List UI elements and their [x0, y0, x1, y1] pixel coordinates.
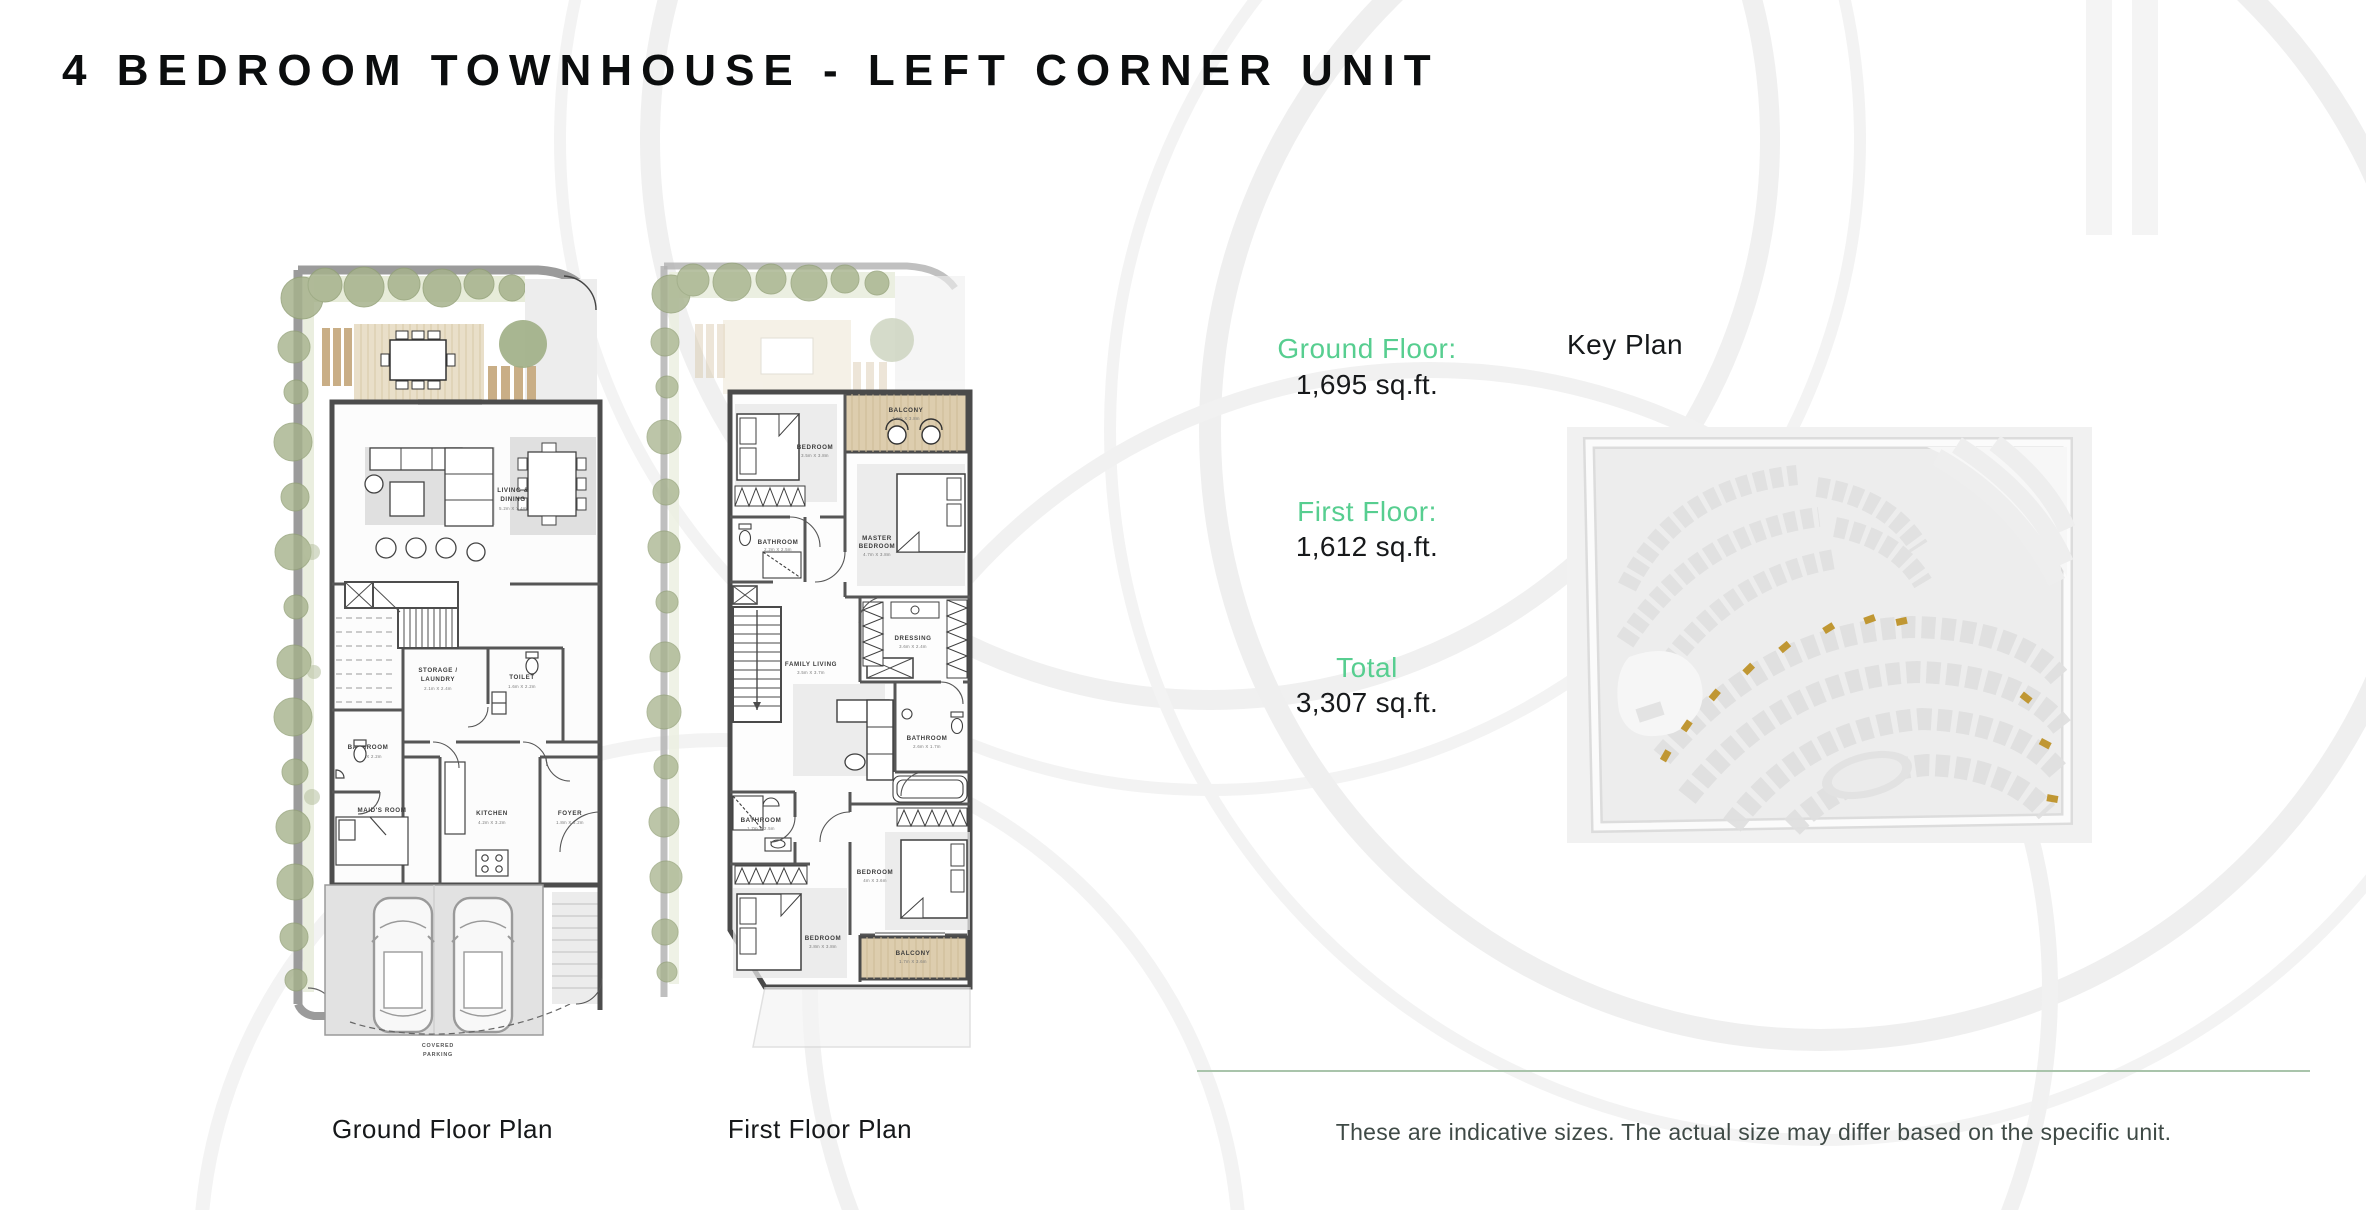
first-floor-label: First Floor:	[1247, 496, 1487, 528]
dining-furniture	[510, 437, 596, 535]
svg-text:1.7m X 2.5m: 1.7m X 2.5m	[747, 826, 775, 831]
tree-row-top	[652, 263, 889, 313]
tree-row-top	[281, 267, 525, 319]
first-floor-value: 1,612 sq.ft.	[1247, 531, 1487, 563]
svg-text:COVERED: COVERED	[422, 1043, 454, 1049]
separator-line	[1197, 1070, 2310, 1072]
first-floor-plan: BALCONY 1.9m X 3.8m	[645, 252, 995, 1067]
svg-text:BEDROOM: BEDROOM	[805, 935, 842, 942]
svg-text:3.5m X 3.7m: 3.5m X 3.7m	[797, 670, 825, 675]
svg-text:STORAGE /: STORAGE /	[418, 667, 457, 674]
bedroom-furniture	[733, 888, 847, 978]
covered-parking: COVERED PARKING	[325, 885, 570, 1058]
bedroom-furniture	[885, 832, 970, 930]
terrace-deck	[354, 324, 484, 412]
key-plan-map-svg	[1567, 427, 2092, 843]
entry-steps	[552, 885, 602, 1010]
svg-text:4m X 3.6m: 4m X 3.6m	[863, 878, 887, 883]
total-value: 3,307 sq.ft.	[1247, 687, 1487, 719]
ground-floor-value: 1,695 sq.ft.	[1247, 369, 1487, 401]
ground-floor-plan-svg: LIVING & DINING 5.2m X 7.4m STORAGE / LA…	[270, 252, 615, 1067]
first-floor-caption: First Floor Plan	[645, 1114, 995, 1145]
ground-floor-caption: Ground Floor Plan	[270, 1114, 615, 1145]
total-label: Total	[1247, 652, 1487, 684]
svg-text:BALCONY: BALCONY	[896, 950, 931, 957]
svg-text:4.7m X 3.8m: 4.7m X 3.8m	[863, 552, 891, 557]
svg-text:LAUNDRY: LAUNDRY	[421, 676, 455, 683]
disclaimer-text: These are indicative sizes. The actual s…	[1197, 1119, 2310, 1146]
wardrobe	[897, 808, 967, 826]
svg-text:3.8m X 3.8m: 3.8m X 3.8m	[809, 944, 837, 949]
svg-text:FOYER: FOYER	[558, 810, 582, 817]
svg-text:BALCONY: BALCONY	[889, 407, 924, 414]
tree-column-left	[274, 331, 313, 991]
balcony-top: BALCONY 1.9m X 3.8m	[845, 394, 967, 452]
svg-text:2.1m X 2.4m: 2.1m X 2.4m	[424, 686, 452, 691]
staircase	[733, 607, 781, 722]
first-floor-plan-svg: BALCONY 1.9m X 3.8m	[645, 252, 995, 1067]
svg-text:2.2m X 2.5m: 2.2m X 2.5m	[764, 547, 792, 552]
family-living-furniture	[793, 684, 893, 780]
key-plan-map	[1567, 427, 2092, 843]
svg-text:FAMILY LIVING: FAMILY LIVING	[785, 661, 837, 668]
svg-text:LIVING &: LIVING &	[497, 487, 529, 494]
svg-text:TOILET: TOILET	[509, 674, 535, 681]
balcony-bottom: BALCONY 1.7m X 3.6m	[860, 937, 967, 979]
brochure-page: { "page": { "title": "4 BEDROOM TOWNHOUS…	[0, 0, 2366, 1210]
svg-text:1.6m X 2.2m: 1.6m X 2.2m	[508, 684, 536, 689]
ground-floor-label: Ground Floor:	[1247, 333, 1487, 365]
svg-text:1.7m X 3.6m: 1.7m X 3.6m	[899, 959, 927, 964]
page-title: 4 BEDROOM TOWNHOUSE - LEFT CORNER UNIT	[62, 46, 1440, 96]
svg-text:5.2m X 7.4m: 5.2m X 7.4m	[499, 506, 527, 511]
key-plan-title: Key Plan	[1567, 329, 1683, 361]
ground-floor-plan: LIVING & DINING 5.2m X 7.4m STORAGE / LA…	[270, 252, 615, 1067]
svg-text:PARKING: PARKING	[423, 1052, 453, 1058]
svg-text:BEDROOM: BEDROOM	[857, 869, 894, 876]
master-bedroom-furniture	[857, 464, 965, 586]
svg-text:BATHROOM: BATHROOM	[741, 817, 782, 824]
svg-text:4.2m X 3.2m: 4.2m X 3.2m	[478, 820, 506, 825]
svg-text:BATHROOM: BATHROOM	[758, 539, 799, 546]
wardrobe	[735, 866, 807, 884]
tree-column-left	[647, 328, 682, 982]
svg-text:2.6m X 1.7m: 2.6m X 1.7m	[913, 744, 941, 749]
car	[372, 898, 434, 1032]
svg-text:BEDROOM: BEDROOM	[859, 543, 896, 550]
wardrobe	[735, 486, 805, 506]
svg-text:KITCHEN: KITCHEN	[476, 810, 508, 817]
car	[452, 898, 514, 1032]
svg-text:MASTER: MASTER	[862, 535, 892, 542]
svg-text:BATHROOM: BATHROOM	[907, 735, 948, 742]
svg-text:1.9m X 3.8m: 1.9m X 3.8m	[892, 416, 920, 421]
svg-text:DRESSING: DRESSING	[894, 635, 931, 642]
svg-text:BEDROOM: BEDROOM	[797, 444, 834, 451]
svg-text:3.6m X 2.4m: 3.6m X 2.4m	[899, 644, 927, 649]
svg-text:DINING: DINING	[500, 496, 525, 503]
svg-text:3.5m X 3.8m: 3.5m X 3.8m	[801, 453, 829, 458]
courtyard-tree	[499, 320, 547, 368]
svg-text:1.8m X 3.2m: 1.8m X 3.2m	[556, 820, 584, 825]
